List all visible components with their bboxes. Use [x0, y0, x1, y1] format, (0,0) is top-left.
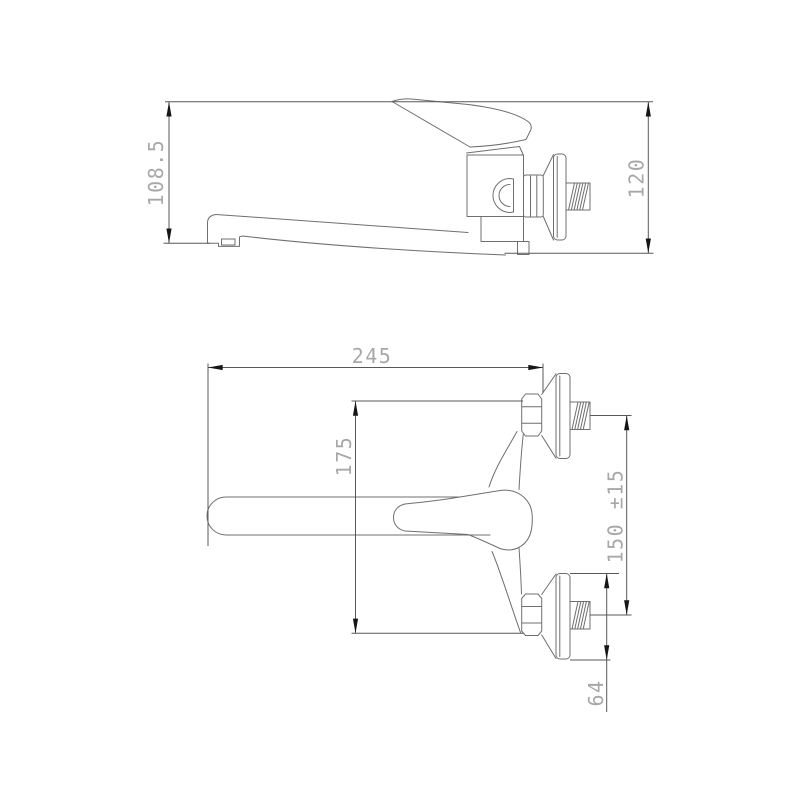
mounting-nut [522, 394, 542, 436]
arrowhead [353, 619, 358, 634]
inlet-connector-bottom [522, 574, 590, 660]
body-neck-lower [492, 548, 522, 633]
arrowhead [166, 102, 171, 117]
arrowhead [604, 574, 609, 589]
flange-plate [556, 574, 570, 660]
threaded-stud [570, 402, 590, 430]
plan-view-outline [207, 374, 590, 660]
dim-175-label: 175 [332, 436, 356, 477]
dim-245-label: 245 [352, 344, 393, 368]
side-view: 108.5 120 [144, 99, 654, 255]
flange-cone [542, 574, 556, 659]
mounting-nut [522, 594, 542, 636]
arrowhead [604, 645, 609, 660]
wall-shank [518, 242, 530, 255]
arrowhead [646, 239, 651, 254]
drawing-page: 108.5 120 [0, 0, 800, 800]
arrowhead [624, 600, 629, 615]
arrowhead [624, 416, 629, 431]
spout-top-edge [216, 215, 468, 233]
dim-64-label: 64 [584, 679, 608, 706]
dim-150-label: 150 ±15 [604, 469, 628, 564]
inlet-connector-top [522, 374, 590, 459]
spout [207, 497, 490, 535]
flange-cone [542, 374, 556, 458]
plan-view: 245 175 150 ±15 64 [207, 344, 632, 712]
arrowhead [166, 229, 171, 244]
arrowhead [646, 102, 651, 117]
handle-lever [392, 99, 531, 147]
technical-drawing-canvas: 108.5 120 [0, 0, 800, 800]
swivel-dome [493, 179, 514, 213]
aerator [222, 239, 236, 245]
arrowhead [353, 401, 358, 416]
mounting-nut [524, 175, 544, 217]
flange-plate [556, 374, 570, 459]
cartridge-cap [467, 147, 524, 156]
side-view-dimensions: 108.5 120 [144, 102, 654, 253]
body-neck-upper [489, 432, 523, 490]
wall-flange [543, 154, 566, 240]
dim-120-label: 120 [625, 158, 649, 199]
threaded-stud [566, 183, 590, 210]
side-view-outline [208, 99, 591, 255]
spout-outline [208, 215, 506, 256]
threaded-stud [570, 602, 590, 630]
faucet-body-lower [481, 217, 524, 242]
handle-lever [394, 490, 533, 550]
dim-108-5-label: 108.5 [144, 139, 168, 207]
arrowhead [208, 365, 223, 370]
arrowhead [528, 365, 543, 370]
plan-view-dimensions: 245 175 150 ±15 64 [208, 344, 632, 712]
faucet-body [467, 155, 524, 217]
